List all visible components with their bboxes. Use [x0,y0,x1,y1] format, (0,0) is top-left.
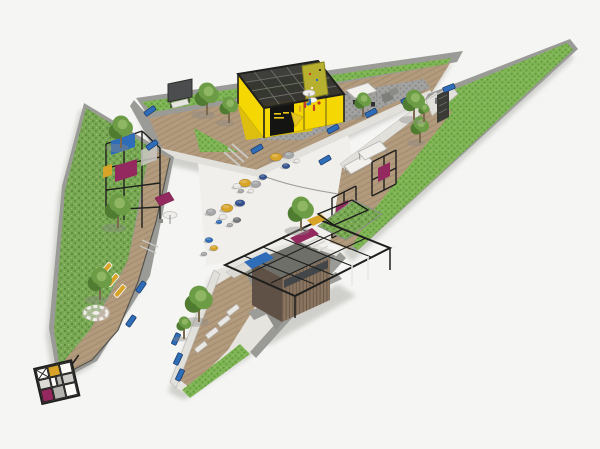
tree-shadow [407,140,425,146]
tree-canopy-highlight [195,290,206,301]
tree-shadow [191,111,214,119]
pouf-highlight [295,160,298,162]
gray-chair [158,219,163,223]
tree-canopy-highlight [422,105,427,110]
pouf-highlight [234,184,238,186]
architectural-site-render [0,0,600,449]
tree-shadow [284,227,309,236]
pouf-seat [199,252,207,257]
pouf-highlight [234,218,238,220]
tree-shadow [216,120,234,126]
pouf-highlight [202,253,205,255]
figure-body [435,100,437,105]
blue-bench [126,315,137,328]
pouf-highlight [241,180,248,183]
person-figure [299,106,301,112]
tree-shadow [101,224,126,233]
pouf-highlight [272,154,279,157]
figure-head [435,98,437,100]
tree-canopy-highlight [118,119,128,129]
tree-canopy-highlight [204,86,214,96]
red-chair [317,101,320,104]
tree-canopy-highlight [182,319,188,325]
pouf-highlight [239,190,242,192]
figure-head [313,105,315,107]
pouf-highlight [223,205,230,208]
pouf-highlight [217,221,220,223]
figure-body [313,107,315,112]
person-figure [309,99,311,105]
person-figure [435,98,437,104]
pouf-highlight [206,238,210,240]
tree-shadow [351,114,367,120]
tree-canopy-highlight [297,201,308,212]
tree-canopy-highlight [97,271,107,281]
figure-body [299,108,301,113]
figure-head [309,99,311,101]
seating-center [93,311,100,315]
pouf-highlight [253,182,259,185]
pouf-highlight [283,164,287,166]
tree-shadow [105,144,128,152]
figure-head [304,102,306,104]
circular-seating [82,305,110,322]
pouf-highlight [260,175,264,177]
figure-head [299,106,301,108]
tree-shadow [84,296,107,304]
pouf-highlight [211,246,215,248]
tree-shadow [173,336,187,341]
pouf-highlight [220,215,224,217]
person-figure [304,102,306,108]
pouf-highlight [228,224,231,226]
figure-body [304,104,306,109]
pouf-highlight [237,201,243,204]
display-board [168,79,192,108]
pouf-highlight [208,210,214,213]
person-figure [313,105,315,111]
pouf-highlight [249,190,252,192]
tree-canopy-highlight [226,99,234,107]
tree-canopy-highlight [114,198,125,209]
figure-body [309,101,311,106]
pouf-highlight [286,153,292,156]
tree-canopy-highlight [361,95,368,102]
tree-canopy-highlight [411,93,420,102]
render-canvas [0,0,600,449]
